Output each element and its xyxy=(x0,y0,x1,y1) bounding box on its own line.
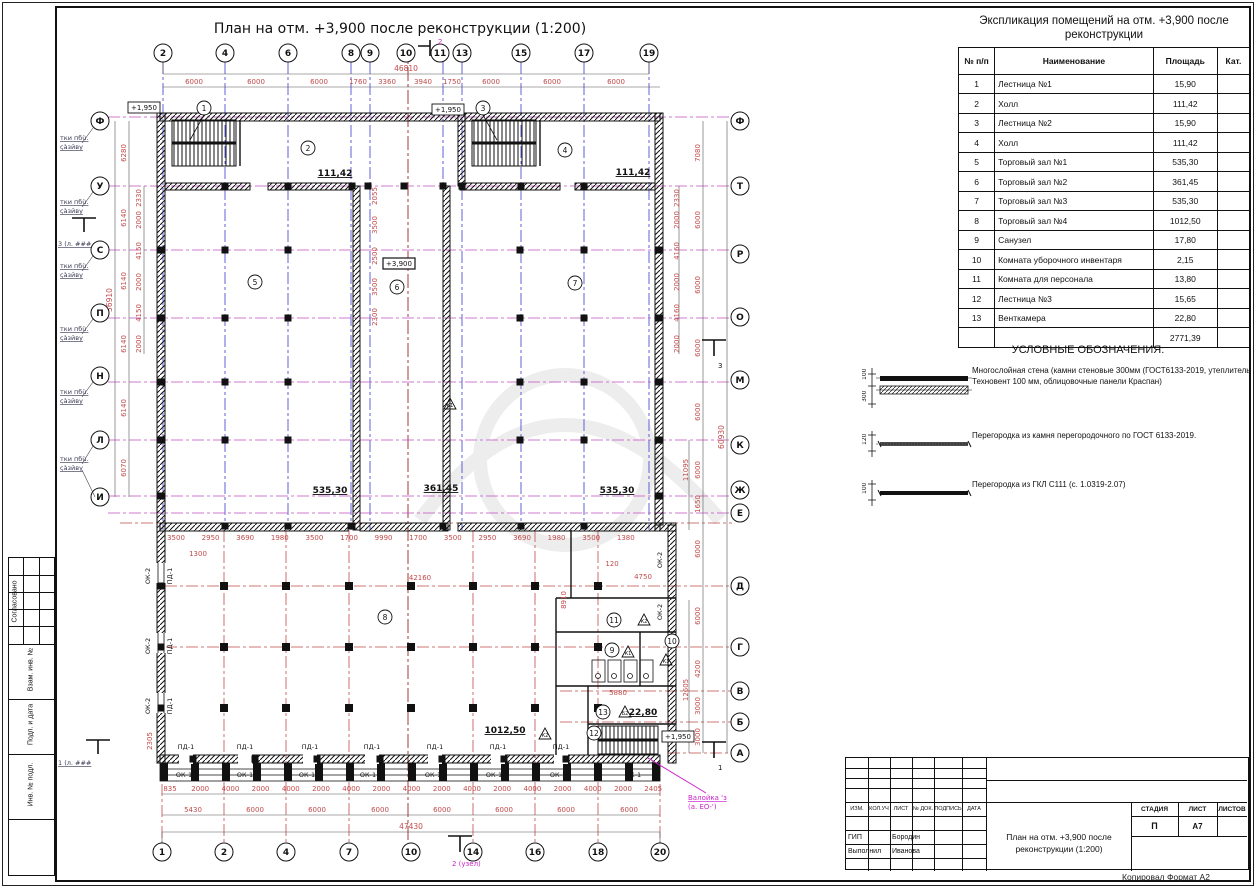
svg-text:Б2: Б2 xyxy=(622,711,629,717)
multilayer-wall-symbol: 100 300 xyxy=(862,364,972,415)
tb-header-list: ЛИСТ xyxy=(890,802,912,816)
table-row: 7Торговый зал №3535,30 xyxy=(959,191,1250,211)
svg-text:12605: 12605 xyxy=(682,679,690,701)
column xyxy=(440,183,447,190)
column xyxy=(282,704,290,712)
window-label: ОК-1 xyxy=(360,771,376,779)
inner-dim: 3690 xyxy=(513,534,531,542)
table-row: 2Холл111,42 xyxy=(959,94,1250,114)
svg-text:16: 16 xyxy=(529,848,542,858)
svg-text:С: С xyxy=(97,246,104,256)
svg-text:6140: 6140 xyxy=(120,209,128,227)
svg-text:42160: 42160 xyxy=(409,574,431,582)
right-dims-lower: 6000 6000 4200 3000 3000 xyxy=(694,540,702,746)
inner-dim: 2300 xyxy=(371,308,379,326)
tb-sheets-value xyxy=(1217,816,1247,836)
stone-partition-symbol: 120 xyxy=(862,429,972,464)
legend-item-wall: 100 300 Многослойная стена (камни стенов… xyxy=(862,364,1254,415)
svg-text:10: 10 xyxy=(400,49,413,59)
table-row: 12Лестница №315,65 xyxy=(959,289,1250,309)
svg-text:4: 4 xyxy=(222,49,228,59)
svg-text:6000: 6000 xyxy=(620,806,638,814)
svg-text:тки пбù.: тки пбù. xyxy=(60,455,88,463)
tb-stage-value: П xyxy=(1131,816,1178,836)
column xyxy=(282,582,290,590)
svg-text:Б: Б xyxy=(737,718,744,728)
svg-text:2305: 2305 xyxy=(146,732,154,750)
left-dims: 6280 6140 6140 6140 6140 6070 xyxy=(120,144,128,477)
column xyxy=(459,183,466,190)
svg-text:6000: 6000 xyxy=(694,211,702,229)
column xyxy=(285,523,292,530)
column xyxy=(345,704,353,712)
sub-dim: 2000 xyxy=(673,273,681,291)
column xyxy=(349,183,356,190)
svg-text:М: М xyxy=(736,376,745,386)
side-notes: тки пбù.çàзйву тки пбù.çàзйву тки пбù.çà… xyxy=(60,134,88,472)
sub-dim: 2000 xyxy=(673,211,681,229)
svg-text:361,45: 361,45 xyxy=(424,484,459,494)
window-dim: 2405 xyxy=(644,785,662,793)
column xyxy=(314,756,321,763)
svg-text:15: 15 xyxy=(515,49,528,59)
svg-text:22,80: 22,80 xyxy=(629,708,657,718)
door-label: ПД-1 xyxy=(490,743,506,751)
svg-text:120: 120 xyxy=(605,560,618,568)
tb-name-vypolnil: Иванова xyxy=(890,844,936,858)
svg-text:çàзйву: çàзйву xyxy=(60,271,83,279)
svg-text:К3: К3 xyxy=(663,659,670,665)
gkl-partition-symbol: 100 xyxy=(862,478,972,513)
column xyxy=(222,315,229,322)
svg-text:К2: К2 xyxy=(542,733,549,739)
table-row: 9Санузел17,80 xyxy=(959,230,1250,250)
table-row: 4Холл111,42 xyxy=(959,133,1250,153)
svg-text:3: 3 xyxy=(718,362,722,370)
tb-role-gip: ГИП xyxy=(846,830,892,844)
column xyxy=(349,523,356,530)
tb-header-data: ДАТА xyxy=(962,802,986,816)
column xyxy=(285,437,292,444)
svg-text:1012,50: 1012,50 xyxy=(485,726,526,736)
svg-text:6000: 6000 xyxy=(495,806,513,814)
column xyxy=(407,704,415,712)
column xyxy=(345,582,353,590)
door-label: ПД-1 xyxy=(553,743,569,751)
svg-text:1 (л. ###: 1 (л. ### xyxy=(58,759,91,767)
column xyxy=(285,247,292,254)
svg-text:тки пбù.: тки пбù. xyxy=(60,134,88,142)
column xyxy=(158,315,165,322)
column xyxy=(531,582,539,590)
svg-text:+1,950: +1,950 xyxy=(435,106,461,114)
column xyxy=(469,643,477,651)
bottom-dims: 5430 6000 6000 6000 6000 6000 6000 6000 xyxy=(184,806,638,814)
column xyxy=(517,247,524,254)
drawing-sheet: План на отм. +3,900 после реконструкции … xyxy=(0,0,1256,888)
inner-dim: 3500 xyxy=(582,534,600,542)
inner-dim: 9990 xyxy=(375,534,393,542)
svg-text:6000: 6000 xyxy=(694,339,702,357)
column xyxy=(158,379,165,386)
column xyxy=(285,183,292,190)
svg-text:К1: К1 xyxy=(625,651,632,657)
svg-text:20: 20 xyxy=(654,848,667,858)
bottom-window-dims: 8352000400020004000200040002000400020004… xyxy=(163,785,662,793)
svg-text:1: 1 xyxy=(202,104,207,113)
svg-text:çàзйву: çàзйву xyxy=(60,464,83,472)
column xyxy=(656,247,663,254)
svg-text:тки пбù.: тки пбù. xyxy=(60,325,88,333)
svg-text:17: 17 xyxy=(578,49,591,59)
svg-text:Д: Д xyxy=(736,582,744,592)
svg-text:6140: 6140 xyxy=(120,272,128,290)
window-label: ОК-1 xyxy=(550,771,566,779)
svg-text:тки пбù.: тки пбù. xyxy=(60,198,88,206)
svg-text:19: 19 xyxy=(643,49,656,59)
col-header-num: № п/п xyxy=(959,47,995,74)
left-margin-strip: Согласовано Взам. инв. № Подп. и дата Ин… xyxy=(8,557,55,876)
legend-item-gkl-partition: 100 Перегородка из ГКЛ С111 (с. 1.0319-2… xyxy=(862,478,1254,513)
svg-text:çàзйву: çàзйву xyxy=(60,207,83,215)
inner-dim: 1700 xyxy=(340,534,358,542)
svg-text:11095: 11095 xyxy=(682,459,690,481)
tb-doc-title: План на отм. +3,900 после реконструкции … xyxy=(988,816,1130,871)
column xyxy=(282,643,290,651)
svg-text:6000: 6000 xyxy=(557,806,575,814)
svg-text:8: 8 xyxy=(383,613,388,622)
svg-text:Е: Е xyxy=(737,509,743,519)
svg-text:Ф: Ф xyxy=(96,117,105,127)
svg-text:2: 2 xyxy=(160,49,166,59)
interior-walls xyxy=(160,113,660,531)
svg-text:13: 13 xyxy=(456,49,469,59)
right-dims-upper: 7080 6000 6000 6000 6000 6000 1650 xyxy=(694,144,702,513)
copied-format-note: Копировал Формат А2 xyxy=(1086,872,1246,882)
svg-text:2 (узел): 2 (узел) xyxy=(452,860,481,868)
column xyxy=(407,582,415,590)
svg-text:7: 7 xyxy=(573,279,578,288)
svg-text:К1: К1 xyxy=(447,403,454,409)
svg-text:11: 11 xyxy=(434,49,447,59)
window-label: ОК-1 xyxy=(425,771,441,779)
window-dim: 2000 xyxy=(614,785,632,793)
ok2-labels-left: ОК-2ОК-2ОК-2 xyxy=(144,568,152,714)
svg-text:10: 10 xyxy=(667,637,677,646)
svg-text:535,30: 535,30 xyxy=(600,486,635,496)
inner-v-dims: 20553500250035002300 xyxy=(371,187,379,326)
svg-text:3000: 3000 xyxy=(694,728,702,746)
top-dims: 6000 6000 6000 1760 3360 3940 1750 6000 … xyxy=(185,78,625,86)
column xyxy=(656,315,663,322)
svg-text:+1,950: +1,950 xyxy=(131,104,157,112)
tb-header-koluch: КОЛ.УЧ xyxy=(868,802,890,816)
inner-dim: 2950 xyxy=(478,534,496,542)
svg-text:6000: 6000 xyxy=(694,540,702,558)
table-row: 1Лестница №115,90 xyxy=(959,74,1250,94)
col-header-name: Наименование xyxy=(995,47,1154,74)
window-dim: 2000 xyxy=(433,785,451,793)
column xyxy=(517,437,524,444)
window-dim: 2000 xyxy=(312,785,330,793)
svg-text:7080: 7080 xyxy=(694,144,702,162)
window-dim: 4000 xyxy=(584,785,602,793)
svg-text:5: 5 xyxy=(253,278,258,287)
svg-text:2: 2 xyxy=(306,144,311,153)
table-row: 13Венткамера22,80 xyxy=(959,308,1250,328)
window-dim: 835 xyxy=(163,785,176,793)
column xyxy=(222,379,229,386)
svg-text:3940: 3940 xyxy=(414,78,432,86)
svg-text:6000: 6000 xyxy=(694,276,702,294)
column xyxy=(594,643,602,651)
svg-text:2: 2 xyxy=(221,848,227,858)
legend-title: УСЛОВНЫЕ ОБОЗНАЧЕНИЯ: xyxy=(922,344,1254,356)
column xyxy=(158,644,165,651)
svg-text:6140: 6140 xyxy=(120,399,128,417)
sub-dim: 4150 xyxy=(135,304,143,322)
svg-text:Валойка 'з: Валойка 'з xyxy=(688,794,727,802)
inner-dim: 1700 xyxy=(409,534,427,542)
svg-text:6070: 6070 xyxy=(120,459,128,477)
svg-text:К: К xyxy=(736,441,744,451)
svg-text:6000: 6000 xyxy=(185,78,203,86)
svg-text:Л: Л xyxy=(96,436,103,446)
tb-role-vypolnil: Выполнил xyxy=(846,844,892,858)
sub-dim: 4160 xyxy=(673,242,681,260)
column xyxy=(563,756,570,763)
tb-sheet-value: А7 xyxy=(1178,816,1217,836)
svg-text:535,30: 535,30 xyxy=(313,486,348,496)
sub-dim: 2000 xyxy=(135,273,143,291)
tb-sheets-label: ЛИСТОВ xyxy=(1217,802,1247,816)
svg-text:6280: 6280 xyxy=(120,144,128,162)
svg-text:2: 2 xyxy=(438,38,442,46)
tb-stage-label: СТАДИЯ xyxy=(1131,802,1178,816)
svg-text:В: В xyxy=(737,687,744,697)
pd1-labels-left: ПД-1ПД-1ПД-1 xyxy=(166,568,174,714)
svg-text:çàзйву: çàзйву xyxy=(60,143,83,151)
svg-text:А: А xyxy=(737,749,744,759)
column xyxy=(518,183,525,190)
svg-text:5880: 5880 xyxy=(609,689,627,697)
svg-text:3360: 3360 xyxy=(378,78,396,86)
column xyxy=(656,493,663,500)
svg-text:100: 100 xyxy=(862,368,868,380)
window-dim: 4000 xyxy=(282,785,300,793)
svg-text:6000: 6000 xyxy=(433,806,451,814)
svg-text:6: 6 xyxy=(285,49,291,59)
svg-text:6000: 6000 xyxy=(543,78,561,86)
window-dim: 4000 xyxy=(403,785,421,793)
explication-title: Экспликация помещений на отм. +3,900 пос… xyxy=(958,14,1250,43)
inner-dim: 3500 xyxy=(371,278,379,296)
svg-text:12: 12 xyxy=(589,729,599,738)
svg-text:6000: 6000 xyxy=(310,78,328,86)
column xyxy=(401,183,408,190)
window-label: ОК-1 xyxy=(237,771,253,779)
svg-text:У: У xyxy=(97,182,104,192)
axis-bubble-labels-left: ФУСПНЛИ xyxy=(96,117,105,503)
window-label: ОК-2 xyxy=(144,698,152,714)
svg-text:çàзйву: çàзйву xyxy=(60,397,83,405)
column xyxy=(581,523,588,530)
column xyxy=(345,643,353,651)
svg-text:тки пбù.: тки пбù. xyxy=(60,388,88,396)
tb-sheet-label: ЛИСТ xyxy=(1178,802,1217,816)
door-label: ПД-1 xyxy=(364,743,380,751)
bottom-window-piers xyxy=(160,763,660,781)
column xyxy=(158,247,165,254)
tb-header-dok: № ДОК. xyxy=(912,802,934,816)
tb-header-podpis: ПОДПИСЬ xyxy=(934,802,962,816)
svg-text:6: 6 xyxy=(395,283,400,292)
column xyxy=(469,582,477,590)
axis-bubbles-right xyxy=(731,112,749,762)
svg-text:100: 100 xyxy=(862,482,868,494)
svg-text:1650: 1650 xyxy=(694,495,702,513)
svg-text:6000: 6000 xyxy=(371,806,389,814)
svg-text:8: 8 xyxy=(348,49,354,59)
door-label: ПД-1 xyxy=(166,638,174,654)
column xyxy=(158,437,165,444)
window-dim: 4000 xyxy=(221,785,239,793)
window-dim: 2000 xyxy=(554,785,572,793)
svg-text:6000: 6000 xyxy=(308,806,326,814)
column xyxy=(222,437,229,444)
inner-dim: 2055 xyxy=(371,187,379,205)
svg-text:10: 10 xyxy=(405,848,418,858)
plan-title: План на отм. +3,900 после реконструкции … xyxy=(214,21,586,37)
svg-text:К2: К2 xyxy=(641,619,648,625)
column xyxy=(440,523,447,530)
svg-text:9: 9 xyxy=(610,646,615,655)
window-label: ОК-2 xyxy=(144,638,152,654)
sub-dim: 2330 xyxy=(135,189,143,207)
window-dim: 4000 xyxy=(523,785,541,793)
column xyxy=(656,437,663,444)
svg-text:5430: 5430 xyxy=(184,806,202,814)
column xyxy=(469,704,477,712)
dim-total-right: 60930 xyxy=(717,425,726,449)
sub-dim: 4150 xyxy=(135,242,143,260)
legend-item-stone-partition: 120 Перегородка из камня перегородочного… xyxy=(862,429,1254,464)
svg-text:6000: 6000 xyxy=(607,78,625,86)
svg-text:6000: 6000 xyxy=(694,607,702,625)
table-row: 11Комната для персонала13,80 xyxy=(959,269,1250,289)
svg-text:6000: 6000 xyxy=(247,78,265,86)
legend-text-stone-partition: Перегородка из камня перегородочного по … xyxy=(972,429,1196,442)
column xyxy=(581,315,588,322)
inner-dim: 1980 xyxy=(548,534,566,542)
svg-text:6000: 6000 xyxy=(694,461,702,479)
column xyxy=(220,704,228,712)
svg-text:18: 18 xyxy=(592,848,605,858)
window-label: ОК-2 xyxy=(656,604,664,620)
column xyxy=(220,643,228,651)
column xyxy=(594,582,602,590)
column xyxy=(656,379,663,386)
strip-label-soglasovano: Согласовано xyxy=(12,562,19,642)
window-dim: 2000 xyxy=(372,785,390,793)
toilet-stalls xyxy=(592,660,653,682)
svg-text:13: 13 xyxy=(598,708,608,717)
svg-text:3 (л. ###: 3 (л. ### xyxy=(58,240,91,248)
svg-text:6000: 6000 xyxy=(482,78,500,86)
sub-dim: 2000 xyxy=(135,335,143,353)
svg-text:Н: Н xyxy=(96,372,104,382)
svg-text:6140: 6140 xyxy=(120,335,128,353)
watermark xyxy=(420,375,720,545)
column xyxy=(517,379,524,386)
inner-dim: 3690 xyxy=(236,534,254,542)
svg-text:1300: 1300 xyxy=(189,550,207,558)
svg-text:1: 1 xyxy=(718,764,722,772)
col-header-area: Площадь xyxy=(1153,47,1217,74)
column xyxy=(158,583,165,590)
svg-text:4200: 4200 xyxy=(694,660,702,678)
svg-text:1750: 1750 xyxy=(443,78,461,86)
svg-text:Р: Р xyxy=(737,250,744,260)
column xyxy=(222,183,229,190)
door-label: ПД-1 xyxy=(178,743,194,751)
svg-text:О: О xyxy=(736,313,744,323)
room-numbers: 1 2 3 4 5 6 7 8 9 10 11 12 13 xyxy=(202,104,677,738)
sub-dim: 4160 xyxy=(673,304,681,322)
inner-dim: 1380 xyxy=(617,534,635,542)
window-dim: 4000 xyxy=(342,785,360,793)
svg-text:+1,950: +1,950 xyxy=(665,733,691,741)
column xyxy=(252,756,259,763)
svg-text:7: 7 xyxy=(346,848,352,858)
svg-text:4750: 4750 xyxy=(634,573,652,581)
svg-text:9: 9 xyxy=(367,49,373,59)
column xyxy=(501,756,508,763)
window-dim: 2000 xyxy=(493,785,511,793)
pd1-labels: ПД-1ПД-1ПД-1ПД-1ПД-1ПД-1ПД-1 xyxy=(178,743,569,751)
svg-text:4: 4 xyxy=(563,146,568,155)
table-row: 10Комната уборочного инвентаря2,15 xyxy=(959,250,1250,270)
sub-dim: 2000 xyxy=(135,211,143,229)
inner-dim: 3500 xyxy=(371,216,379,234)
explication-panel: Экспликация помещений на отм. +3,900 пос… xyxy=(958,14,1250,348)
inner-dim: 3500 xyxy=(167,534,185,542)
table-row: 6Торговый зал №2361,45 xyxy=(959,172,1250,192)
strip-label-inv: Инв. № подл. xyxy=(28,745,35,825)
tb-name-gip: Бородин xyxy=(890,830,936,844)
column xyxy=(407,643,415,651)
svg-text:120: 120 xyxy=(862,433,868,445)
column xyxy=(220,582,228,590)
inner-dim: 3500 xyxy=(305,534,323,542)
door-label: ПД-1 xyxy=(302,743,318,751)
columns-upper xyxy=(222,247,588,444)
svg-text:8910: 8910 xyxy=(560,591,568,609)
window-label: ОК-1 xyxy=(299,771,315,779)
column xyxy=(517,315,524,322)
svg-text:+3,900: +3,900 xyxy=(386,260,412,268)
svg-text:6000: 6000 xyxy=(694,403,702,421)
legend-panel: УСЛОВНЫЕ ОБОЗНАЧЕНИЯ: 100 300 Многослойн… xyxy=(862,344,1254,527)
inner-dims-bottom: 3500295036901980350017009990170035002950… xyxy=(167,534,635,542)
svg-text:3: 3 xyxy=(481,104,486,113)
column xyxy=(158,493,165,500)
column xyxy=(531,643,539,651)
svg-text:П: П xyxy=(96,309,104,319)
door-label: ПД-1 xyxy=(166,698,174,714)
window-label: ОК-1 xyxy=(176,771,192,779)
svg-text:11: 11 xyxy=(609,616,619,625)
